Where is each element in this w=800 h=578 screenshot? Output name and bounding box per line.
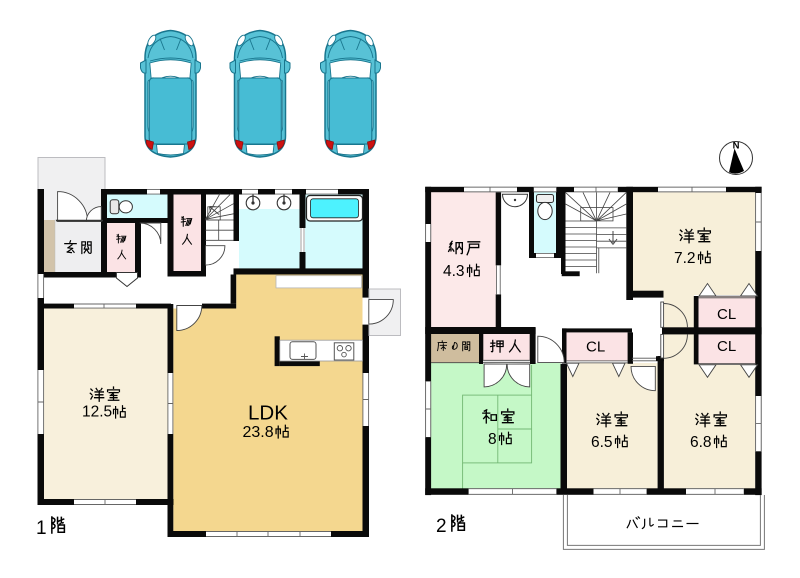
svg-text:LDK: LDK [248, 402, 288, 425]
svg-text:CL: CL [717, 306, 736, 323]
svg-text:7.2: 7.2 [674, 250, 696, 267]
svg-text:23.8: 23.8 [243, 424, 274, 441]
svg-text:1: 1 [36, 518, 47, 539]
svg-text:CL: CL [717, 338, 736, 355]
svg-text:6.8: 6.8 [690, 434, 712, 451]
svg-text:N: N [733, 141, 740, 152]
svg-text:12.5: 12.5 [82, 404, 112, 421]
svg-text:8: 8 [488, 431, 497, 448]
svg-text:CL: CL [586, 339, 605, 356]
svg-text:4.3: 4.3 [443, 263, 465, 280]
svg-text:2: 2 [436, 516, 447, 537]
svg-text:6.5: 6.5 [591, 434, 613, 451]
